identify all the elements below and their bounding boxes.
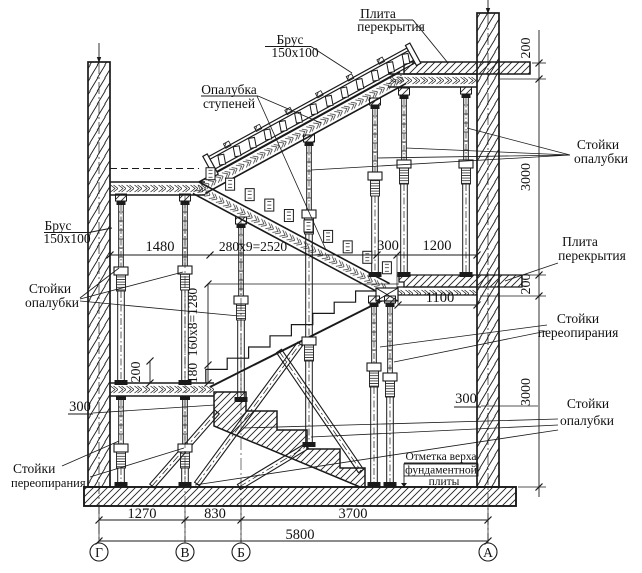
svg-text:Стойки: Стойки (13, 461, 55, 476)
svg-text:переопирания: переопирания (538, 325, 619, 340)
svg-text:переопирания: переопирания (11, 476, 86, 490)
svg-text:160х8=1280: 160х8=1280 (185, 288, 200, 357)
svg-text:1100: 1100 (426, 290, 454, 306)
svg-text:Опалубка: Опалубка (201, 82, 257, 97)
svg-text:300: 300 (377, 238, 399, 254)
svg-text:Стойки: Стойки (577, 137, 619, 152)
svg-text:ступеней: ступеней (203, 96, 255, 111)
svg-text:830: 830 (204, 506, 226, 522)
svg-text:опалубки: опалубки (574, 151, 628, 166)
svg-text:плиты: плиты (429, 476, 460, 488)
svg-text:Г: Г (95, 545, 103, 560)
svg-text:200: 200 (519, 274, 534, 295)
svg-text:Плита: Плита (562, 234, 598, 249)
svg-text:3000: 3000 (519, 163, 534, 191)
svg-text:опалубки: опалубки (25, 295, 79, 310)
svg-text:280х9=2520: 280х9=2520 (219, 239, 288, 254)
svg-text:3700: 3700 (339, 506, 368, 522)
svg-text:Стойки: Стойки (557, 311, 599, 326)
svg-text:300: 300 (455, 391, 477, 407)
svg-text:1270: 1270 (128, 506, 157, 522)
svg-text:Отметка верха: Отметка верха (405, 451, 476, 463)
svg-text:перекрытия: перекрытия (357, 19, 425, 34)
svg-text:200: 200 (519, 38, 534, 59)
svg-text:200: 200 (129, 362, 144, 383)
svg-text:А: А (483, 545, 493, 560)
svg-text:В: В (180, 545, 189, 560)
svg-text:3000: 3000 (519, 378, 534, 406)
svg-text:150х100: 150х100 (43, 231, 91, 246)
svg-text:Б: Б (237, 545, 245, 560)
svg-text:300: 300 (69, 399, 91, 415)
svg-text:опалубки: опалубки (560, 413, 614, 428)
svg-text:1200: 1200 (423, 238, 452, 254)
svg-text:5800: 5800 (286, 527, 315, 543)
svg-text:1480: 1480 (146, 239, 175, 255)
svg-text:перекрытия: перекрытия (558, 248, 626, 263)
svg-text:Стойки: Стойки (29, 281, 71, 296)
svg-text:Стойки: Стойки (567, 396, 609, 411)
svg-text:фундаментной: фундаментной (405, 465, 477, 477)
svg-text:180: 180 (185, 363, 200, 384)
